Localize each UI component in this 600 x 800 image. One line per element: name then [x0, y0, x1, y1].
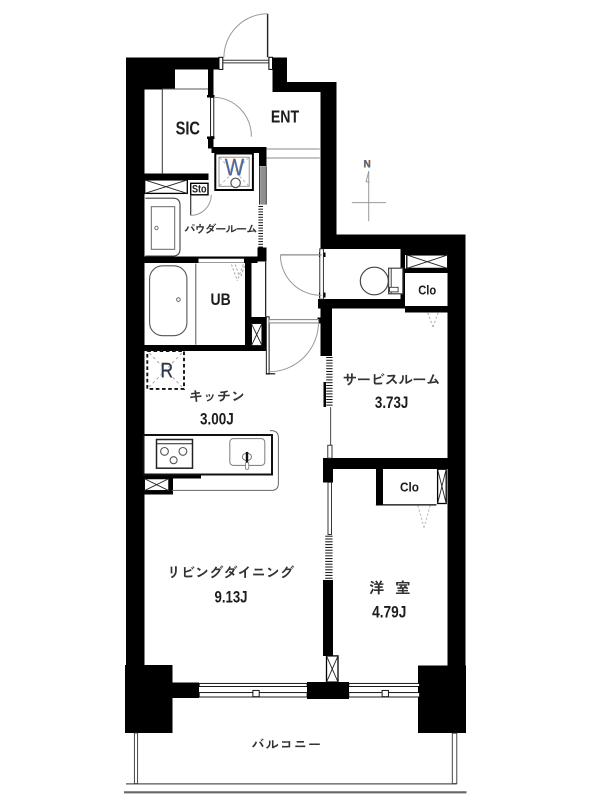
- svg-text:Clo: Clo: [400, 480, 419, 495]
- svg-text:R: R: [161, 358, 174, 382]
- svg-text:3.73J: 3.73J: [375, 394, 408, 412]
- svg-text:N: N: [364, 159, 371, 171]
- svg-text:UB: UB: [211, 290, 231, 309]
- svg-text:9.13J: 9.13J: [215, 588, 248, 606]
- svg-text:Clo: Clo: [418, 283, 436, 298]
- svg-text:3.00J: 3.00J: [200, 411, 234, 429]
- svg-text:4.79J: 4.79J: [372, 603, 406, 621]
- svg-text:Sto: Sto: [192, 184, 207, 196]
- svg-text:SIC: SIC: [176, 119, 200, 139]
- svg-text:ENT: ENT: [271, 106, 299, 126]
- svg-text:W: W: [225, 154, 245, 181]
